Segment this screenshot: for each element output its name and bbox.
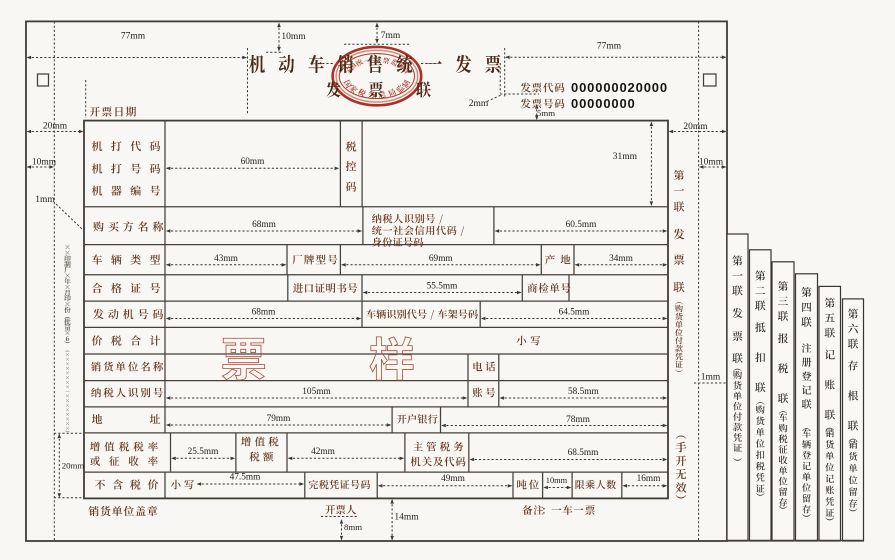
svg-text:5mm: 5mm — [537, 108, 555, 118]
svg-text:60mm: 60mm — [241, 157, 266, 167]
svg-text:14mm: 14mm — [394, 513, 419, 523]
svg-text:1mm: 1mm — [35, 195, 55, 205]
svg-text:16mm: 16mm — [637, 474, 662, 484]
svg-text:77mm: 77mm — [597, 42, 622, 52]
svg-text:68.5mm: 68.5mm — [568, 448, 600, 458]
svg-text:77mm: 77mm — [121, 32, 146, 42]
svg-text:34mm: 34mm — [609, 254, 634, 264]
svg-text:47.5mm: 47.5mm — [230, 473, 262, 483]
svg-text:79mm: 79mm — [267, 414, 292, 424]
svg-text:55.5mm: 55.5mm — [427, 282, 459, 292]
svg-text:8mm: 8mm — [344, 522, 362, 532]
svg-text:60.5mm: 60.5mm — [566, 220, 598, 230]
svg-text:31mm: 31mm — [613, 152, 638, 162]
svg-text:68mm: 68mm — [252, 220, 277, 230]
svg-text:7mm: 7mm — [381, 31, 401, 41]
svg-text:105mm: 105mm — [302, 387, 331, 397]
svg-text:000000020000: 000000020000 — [571, 80, 668, 95]
svg-text:1mm: 1mm — [701, 373, 721, 383]
svg-text:69mm: 69mm — [429, 254, 454, 264]
svg-text:78mm: 78mm — [566, 415, 591, 425]
svg-text:42mm: 42mm — [311, 447, 336, 457]
svg-text:25.5mm: 25.5mm — [188, 447, 220, 457]
svg-text:68mm: 68mm — [252, 308, 277, 318]
svg-text:20mm: 20mm — [683, 122, 708, 132]
svg-text:43mm: 43mm — [214, 254, 239, 264]
svg-text:10mm: 10mm — [281, 32, 306, 42]
svg-text:10mm: 10mm — [32, 158, 57, 168]
svg-text:49mm: 49mm — [441, 474, 466, 484]
svg-text:58.5mm: 58.5mm — [568, 387, 600, 397]
svg-text:64.5mm: 64.5mm — [559, 308, 591, 318]
svg-text:10mm: 10mm — [546, 476, 568, 485]
svg-text:20mm: 20mm — [62, 461, 85, 471]
svg-text:20mm: 20mm — [43, 122, 68, 132]
svg-text:2mm: 2mm — [469, 99, 489, 109]
svg-text:00000000: 00000000 — [571, 96, 636, 111]
